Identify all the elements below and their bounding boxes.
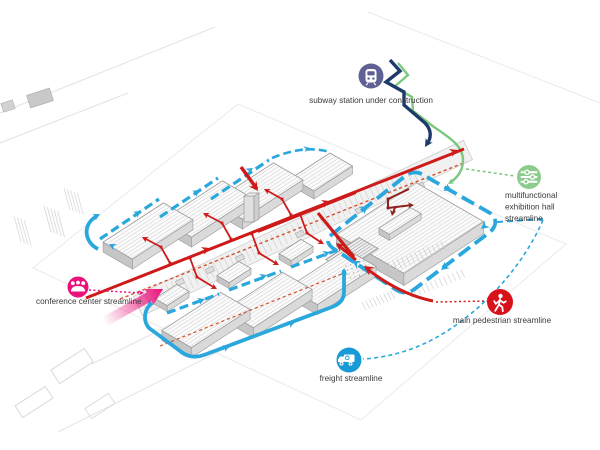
sliders-icon [522, 170, 537, 184]
subway-label: subway station under construction [309, 96, 433, 105]
tree-dot [350, 277, 352, 279]
flow-node [230, 238, 233, 241]
tree-dot [354, 276, 356, 278]
exhibition-label-2: exhibition hall [505, 203, 555, 212]
freight-label: freight streamline [320, 374, 383, 383]
flow-arrowhead [443, 184, 452, 192]
parking-strip-west [64, 188, 83, 215]
conference-label: conference center streamline [36, 297, 142, 306]
context-building-outline [15, 386, 53, 417]
hall-north-4 [292, 153, 353, 199]
context-building [27, 88, 54, 108]
flow-node [196, 276, 199, 279]
hall-north-1 [103, 203, 193, 269]
tree-dot [345, 265, 347, 267]
legend-freight: freight streamline [320, 348, 383, 384]
road-line [0, 93, 128, 143]
tree-dot [363, 274, 365, 276]
flow-node [281, 198, 284, 201]
flow-node [306, 232, 309, 235]
spine-tower-side [254, 193, 259, 222]
flow-node [299, 213, 302, 216]
exhibition-label-3: streamline [505, 214, 543, 223]
pedestrian-label: main pedestrian streamline [453, 316, 552, 325]
context-parking [14, 188, 83, 246]
diagram-svg: subway station under construction multif… [0, 0, 600, 450]
context-building-outline [51, 348, 93, 383]
freight-loop-north [87, 216, 98, 249]
flow-node [160, 246, 163, 249]
legend-exhibition: multifunctional exhibition hall streamli… [505, 165, 558, 223]
parking-strip-west [14, 216, 31, 246]
tree-dot [359, 275, 361, 277]
tree-dot [363, 260, 365, 262]
tree-dot [353, 272, 355, 274]
tree-dot [351, 268, 353, 270]
legend-pedestrian: main pedestrian streamline [453, 289, 552, 325]
tree-dot [357, 271, 359, 273]
flow-node [387, 207, 390, 210]
context-building [1, 100, 15, 112]
tree-dot [347, 269, 349, 271]
flow-node [290, 214, 293, 217]
exhibition-leader-line [466, 169, 515, 176]
site-circulation-diagram: subway station under construction multif… [0, 0, 600, 450]
context-building-outline [85, 393, 115, 418]
freight-loop-dash [272, 149, 330, 158]
spine-tower [244, 196, 254, 222]
flow-node [387, 198, 390, 201]
flow-node [189, 257, 192, 260]
exhibition-label-1: multifunctional [505, 191, 558, 200]
flow-node [221, 222, 224, 225]
parking-strip-west [44, 206, 65, 237]
tree-dot [350, 264, 352, 266]
road-line [368, 12, 600, 103]
tree-dot [365, 264, 367, 266]
tree-dot [348, 273, 350, 275]
legend-subway: subway station under construction [309, 64, 433, 106]
pedestrian-leader-line [436, 301, 488, 302]
flow-node [169, 262, 172, 265]
parking-strip-east [362, 291, 395, 310]
flow-node [258, 252, 261, 255]
flow-node [251, 233, 254, 236]
